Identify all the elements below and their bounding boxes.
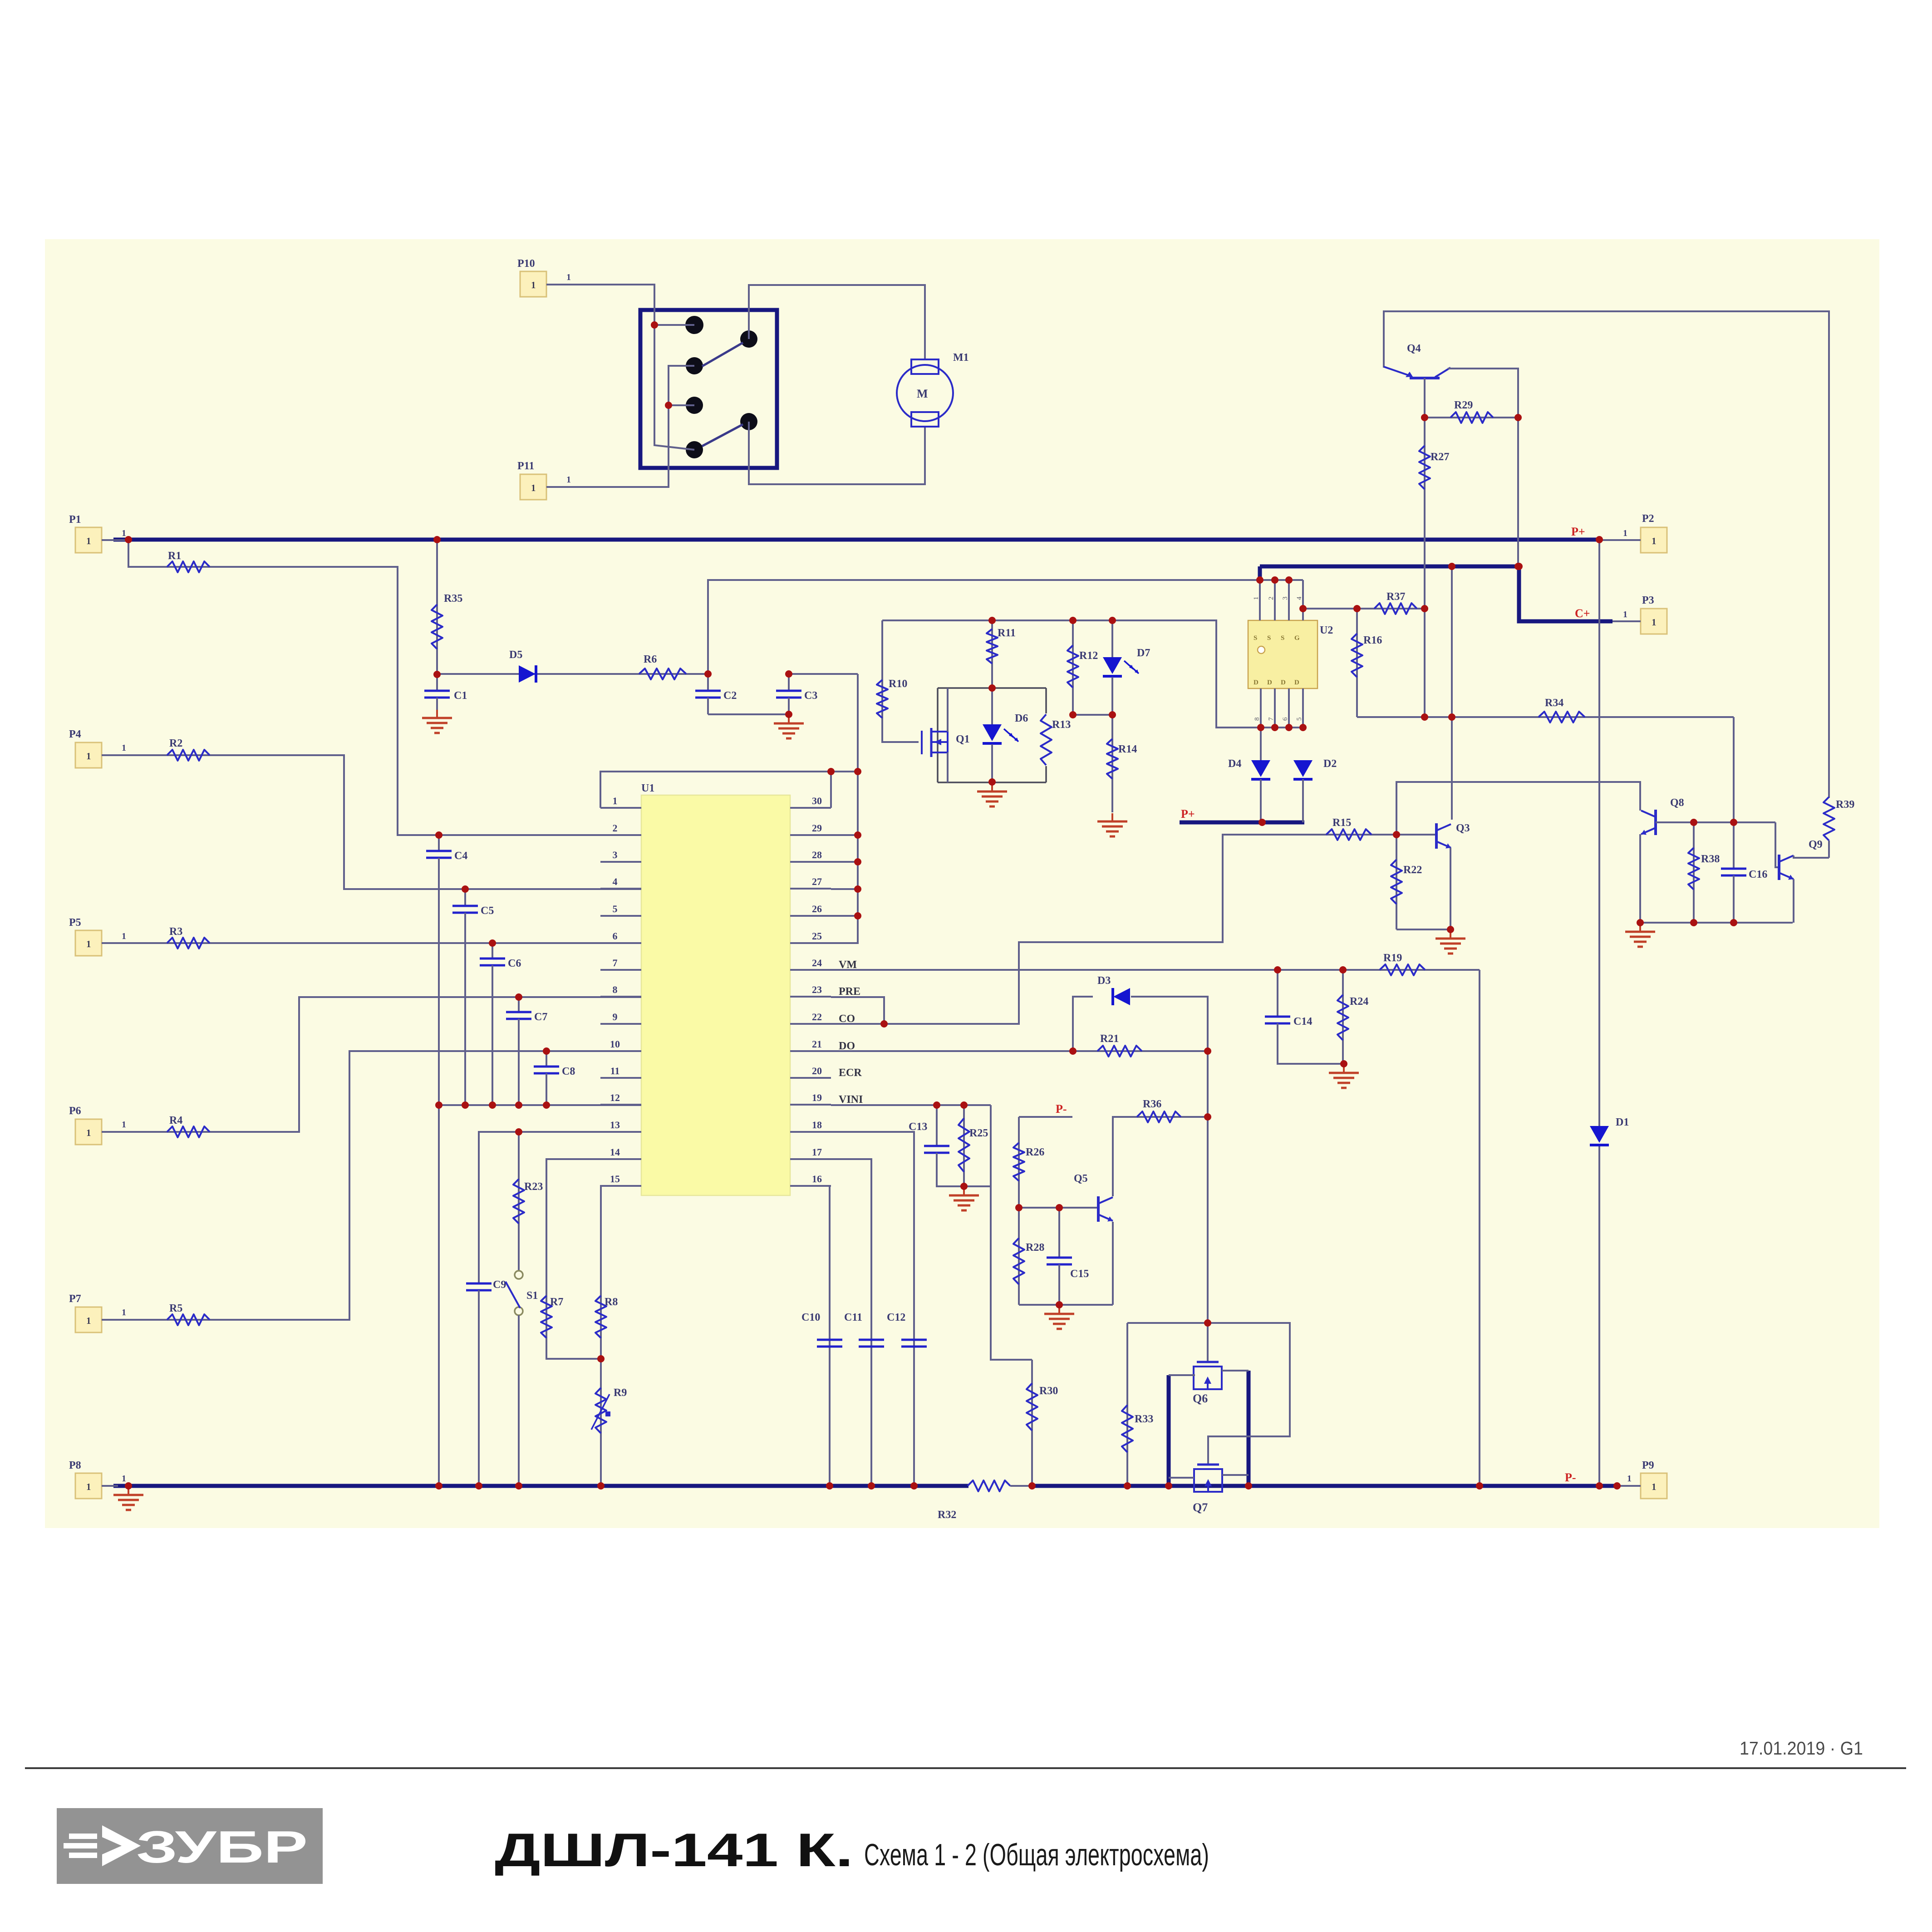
svg-text:P6: P6 — [69, 1105, 81, 1117]
svg-text:7: 7 — [613, 957, 618, 968]
svg-text:C13: C13 — [909, 1121, 927, 1133]
svg-text:D6: D6 — [1015, 713, 1028, 724]
svg-text:1: 1 — [86, 1481, 91, 1492]
svg-text:Q1: Q1 — [956, 733, 970, 745]
svg-text:R5: R5 — [169, 1303, 182, 1314]
svg-text:R16: R16 — [1363, 634, 1382, 646]
svg-text:2: 2 — [613, 822, 618, 834]
svg-text:28: 28 — [812, 849, 822, 860]
svg-text:1: 1 — [566, 272, 571, 282]
svg-text:R3: R3 — [169, 926, 182, 938]
svg-text:R26: R26 — [1026, 1146, 1044, 1158]
svg-text:Q9: Q9 — [1809, 839, 1823, 850]
svg-text:C+: C+ — [1575, 607, 1590, 620]
svg-text:C10: C10 — [801, 1312, 820, 1323]
svg-text:R28: R28 — [1026, 1242, 1044, 1254]
svg-text:14: 14 — [610, 1146, 620, 1158]
svg-text:19: 19 — [812, 1092, 822, 1103]
svg-text:C12: C12 — [887, 1312, 905, 1323]
svg-text:C15: C15 — [1070, 1268, 1089, 1280]
svg-text:R25: R25 — [969, 1127, 988, 1139]
svg-text:5: 5 — [613, 903, 618, 914]
svg-text:ЗУБР: ЗУБР — [136, 1822, 308, 1873]
svg-text:1: 1 — [613, 795, 618, 806]
svg-text:1: 1 — [122, 1474, 126, 1484]
svg-text:D1: D1 — [1616, 1116, 1629, 1128]
svg-text:Q6: Q6 — [1193, 1392, 1208, 1405]
svg-text:1: 1 — [531, 482, 536, 493]
svg-text:20: 20 — [812, 1065, 822, 1077]
svg-text:D: D — [1254, 679, 1259, 686]
svg-text:C7: C7 — [534, 1011, 547, 1023]
svg-text:R27: R27 — [1431, 451, 1449, 463]
svg-text:R33: R33 — [1135, 1413, 1153, 1425]
svg-text:P-: P- — [1056, 1102, 1067, 1116]
svg-text:D: D — [1267, 679, 1272, 686]
svg-text:S: S — [1281, 634, 1284, 642]
svg-text:1: 1 — [122, 1308, 126, 1317]
svg-text:3: 3 — [1282, 597, 1289, 600]
svg-text:R9: R9 — [614, 1387, 627, 1399]
svg-text:1: 1 — [531, 280, 536, 290]
svg-text:R4: R4 — [169, 1115, 182, 1126]
svg-text:1: 1 — [86, 939, 91, 949]
svg-text:G: G — [1294, 634, 1300, 642]
svg-text:15: 15 — [610, 1173, 620, 1185]
svg-text:8: 8 — [613, 984, 618, 995]
svg-text:1: 1 — [1623, 528, 1627, 538]
svg-text:R32: R32 — [938, 1509, 956, 1521]
svg-text:1: 1 — [1652, 1481, 1657, 1492]
svg-text:C1: C1 — [454, 690, 467, 702]
svg-text:C9: C9 — [493, 1279, 506, 1291]
svg-text:2: 2 — [1268, 597, 1275, 600]
svg-text:R13: R13 — [1052, 719, 1071, 731]
svg-text:P7: P7 — [69, 1293, 81, 1305]
svg-text:P+: P+ — [1181, 807, 1195, 821]
svg-text:R39: R39 — [1836, 799, 1854, 811]
svg-text:R37: R37 — [1386, 591, 1405, 603]
svg-text:1: 1 — [566, 475, 571, 485]
svg-text:C4: C4 — [454, 850, 467, 862]
svg-text:R38: R38 — [1701, 853, 1720, 865]
svg-text:1: 1 — [1652, 536, 1657, 546]
svg-text:30: 30 — [812, 795, 822, 806]
svg-text:R35: R35 — [444, 593, 462, 605]
svg-text:Q5: Q5 — [1074, 1173, 1088, 1185]
svg-text:Q7: Q7 — [1193, 1501, 1208, 1514]
svg-text:Схема 1 - 2 (Общая электросхем: Схема 1 - 2 (Общая электросхема) — [864, 1838, 1209, 1872]
svg-text:1: 1 — [86, 536, 91, 546]
svg-text:5: 5 — [1296, 718, 1303, 721]
svg-text:M: M — [917, 387, 928, 400]
svg-text:6: 6 — [613, 930, 618, 942]
svg-text:D5: D5 — [509, 649, 522, 661]
svg-text:D: D — [1294, 679, 1299, 686]
svg-text:C2: C2 — [723, 690, 737, 702]
svg-text:1: 1 — [86, 751, 91, 762]
svg-text:PRE: PRE — [839, 986, 860, 998]
svg-text:D4: D4 — [1228, 758, 1241, 770]
svg-text:18: 18 — [812, 1119, 822, 1131]
svg-text:R1: R1 — [168, 550, 181, 562]
svg-text:C8: C8 — [562, 1066, 575, 1077]
svg-text:29: 29 — [812, 822, 822, 834]
svg-text:C11: C11 — [844, 1312, 862, 1323]
svg-text:S1: S1 — [526, 1290, 538, 1302]
svg-text:C14: C14 — [1293, 1016, 1312, 1027]
svg-text:R22: R22 — [1403, 864, 1422, 876]
svg-text:R8: R8 — [605, 1296, 618, 1308]
svg-text:Q8: Q8 — [1670, 797, 1684, 809]
svg-text:R10: R10 — [889, 678, 907, 690]
svg-text:1: 1 — [122, 743, 126, 753]
svg-text:R34: R34 — [1545, 697, 1563, 709]
svg-text:C5: C5 — [481, 905, 494, 917]
svg-text:R12: R12 — [1079, 650, 1098, 662]
svg-text:U1: U1 — [641, 782, 654, 794]
svg-text:P5: P5 — [69, 917, 81, 929]
svg-text:3: 3 — [613, 849, 618, 860]
svg-text:U2: U2 — [1320, 624, 1333, 636]
svg-text:22: 22 — [812, 1011, 822, 1023]
svg-text:R6: R6 — [644, 654, 657, 665]
svg-text:1: 1 — [86, 1315, 91, 1326]
svg-text:1: 1 — [86, 1127, 91, 1138]
svg-text:10: 10 — [610, 1038, 620, 1050]
svg-text:1: 1 — [122, 528, 126, 538]
svg-text:M1: M1 — [953, 352, 969, 364]
svg-text:4: 4 — [1296, 596, 1303, 600]
svg-text:1: 1 — [122, 931, 126, 941]
svg-text:9: 9 — [613, 1011, 618, 1023]
svg-text:C6: C6 — [508, 958, 521, 969]
svg-text:ДШЛ-141 К.: ДШЛ-141 К. — [495, 1824, 853, 1877]
svg-text:13: 13 — [610, 1119, 620, 1131]
svg-text:25: 25 — [812, 930, 822, 942]
svg-text:Q4: Q4 — [1407, 343, 1421, 354]
svg-text:D3: D3 — [1097, 975, 1111, 987]
svg-text:P8: P8 — [69, 1460, 81, 1471]
svg-text:Q3: Q3 — [1456, 822, 1470, 834]
svg-text:4: 4 — [613, 876, 618, 887]
svg-text:P9: P9 — [1642, 1460, 1654, 1471]
svg-text:R14: R14 — [1118, 743, 1137, 755]
svg-text:R21: R21 — [1100, 1033, 1119, 1045]
svg-text:D: D — [1281, 679, 1286, 686]
svg-text:R19: R19 — [1383, 952, 1402, 964]
svg-text:17: 17 — [812, 1146, 822, 1158]
svg-text:R36: R36 — [1143, 1098, 1161, 1110]
svg-text:R30: R30 — [1039, 1385, 1058, 1397]
svg-text:24: 24 — [812, 957, 822, 968]
svg-text:1: 1 — [1652, 617, 1657, 628]
svg-text:P+: P+ — [1571, 525, 1585, 538]
svg-text:8: 8 — [1254, 718, 1261, 721]
svg-text:D2: D2 — [1323, 758, 1337, 770]
svg-text:R24: R24 — [1350, 996, 1368, 1008]
svg-text:P2: P2 — [1642, 513, 1654, 525]
svg-text:27: 27 — [812, 876, 822, 887]
svg-text:S: S — [1254, 634, 1257, 642]
svg-text:1: 1 — [122, 1120, 126, 1130]
svg-text:C3: C3 — [804, 690, 817, 702]
svg-text:C16: C16 — [1749, 869, 1767, 880]
svg-text:D7: D7 — [1137, 647, 1150, 659]
svg-text:R29: R29 — [1454, 399, 1473, 411]
svg-text:P-: P- — [1565, 1471, 1576, 1484]
svg-text:R7: R7 — [550, 1296, 563, 1308]
svg-text:1: 1 — [1627, 1474, 1632, 1484]
svg-text:P3: P3 — [1642, 595, 1654, 606]
svg-text:R11: R11 — [998, 627, 1016, 639]
svg-text:21: 21 — [812, 1038, 822, 1050]
svg-text:12: 12 — [610, 1092, 620, 1103]
svg-text:7: 7 — [1268, 717, 1275, 721]
svg-text:1: 1 — [1623, 610, 1627, 619]
svg-text:1: 1 — [1253, 597, 1260, 600]
svg-text:S: S — [1267, 634, 1271, 642]
svg-text:P10: P10 — [517, 258, 535, 270]
svg-text:R2: R2 — [169, 737, 182, 749]
svg-text:P11: P11 — [517, 460, 534, 472]
svg-text:17.01.2019 · G1: 17.01.2019 · G1 — [1740, 1738, 1863, 1759]
svg-text:R15: R15 — [1332, 817, 1351, 829]
svg-text:23: 23 — [812, 984, 822, 995]
svg-text:26: 26 — [812, 903, 822, 914]
svg-text:16: 16 — [812, 1173, 822, 1185]
svg-text:P4: P4 — [69, 728, 81, 740]
svg-text:VINI: VINI — [839, 1094, 863, 1106]
svg-text:ECR: ECR — [839, 1067, 862, 1079]
svg-text:11: 11 — [610, 1065, 620, 1077]
svg-text:R23: R23 — [524, 1181, 543, 1193]
svg-text:P1: P1 — [69, 514, 81, 526]
svg-text:6: 6 — [1282, 717, 1289, 721]
